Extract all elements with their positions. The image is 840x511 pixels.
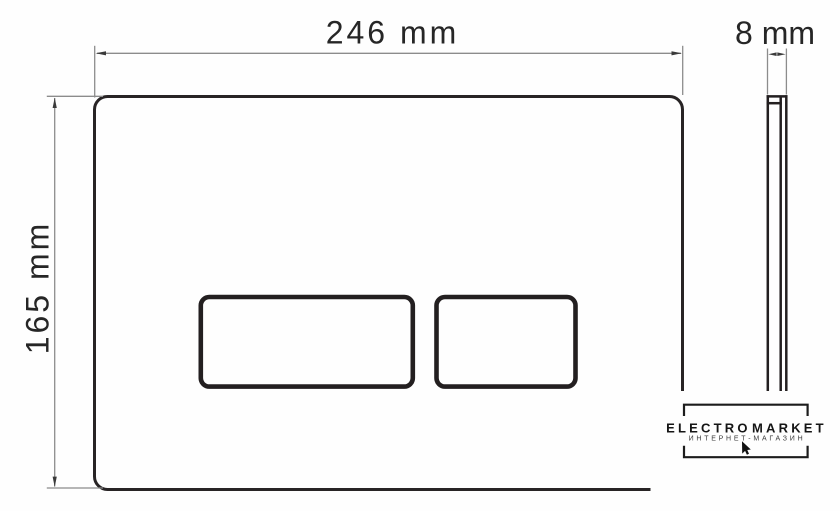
svg-text:ELECTRO MARKET: ELECTRO MARKET	[666, 420, 827, 435]
svg-text:8 mm: 8 mm	[735, 15, 815, 51]
svg-text:ИНТЕРНЕТ-МАГАЗИН: ИНТЕРНЕТ-МАГАЗИН	[689, 435, 806, 442]
svg-text:246 mm: 246 mm	[326, 14, 460, 50]
svg-text:165 mm: 165 mm	[20, 221, 56, 355]
